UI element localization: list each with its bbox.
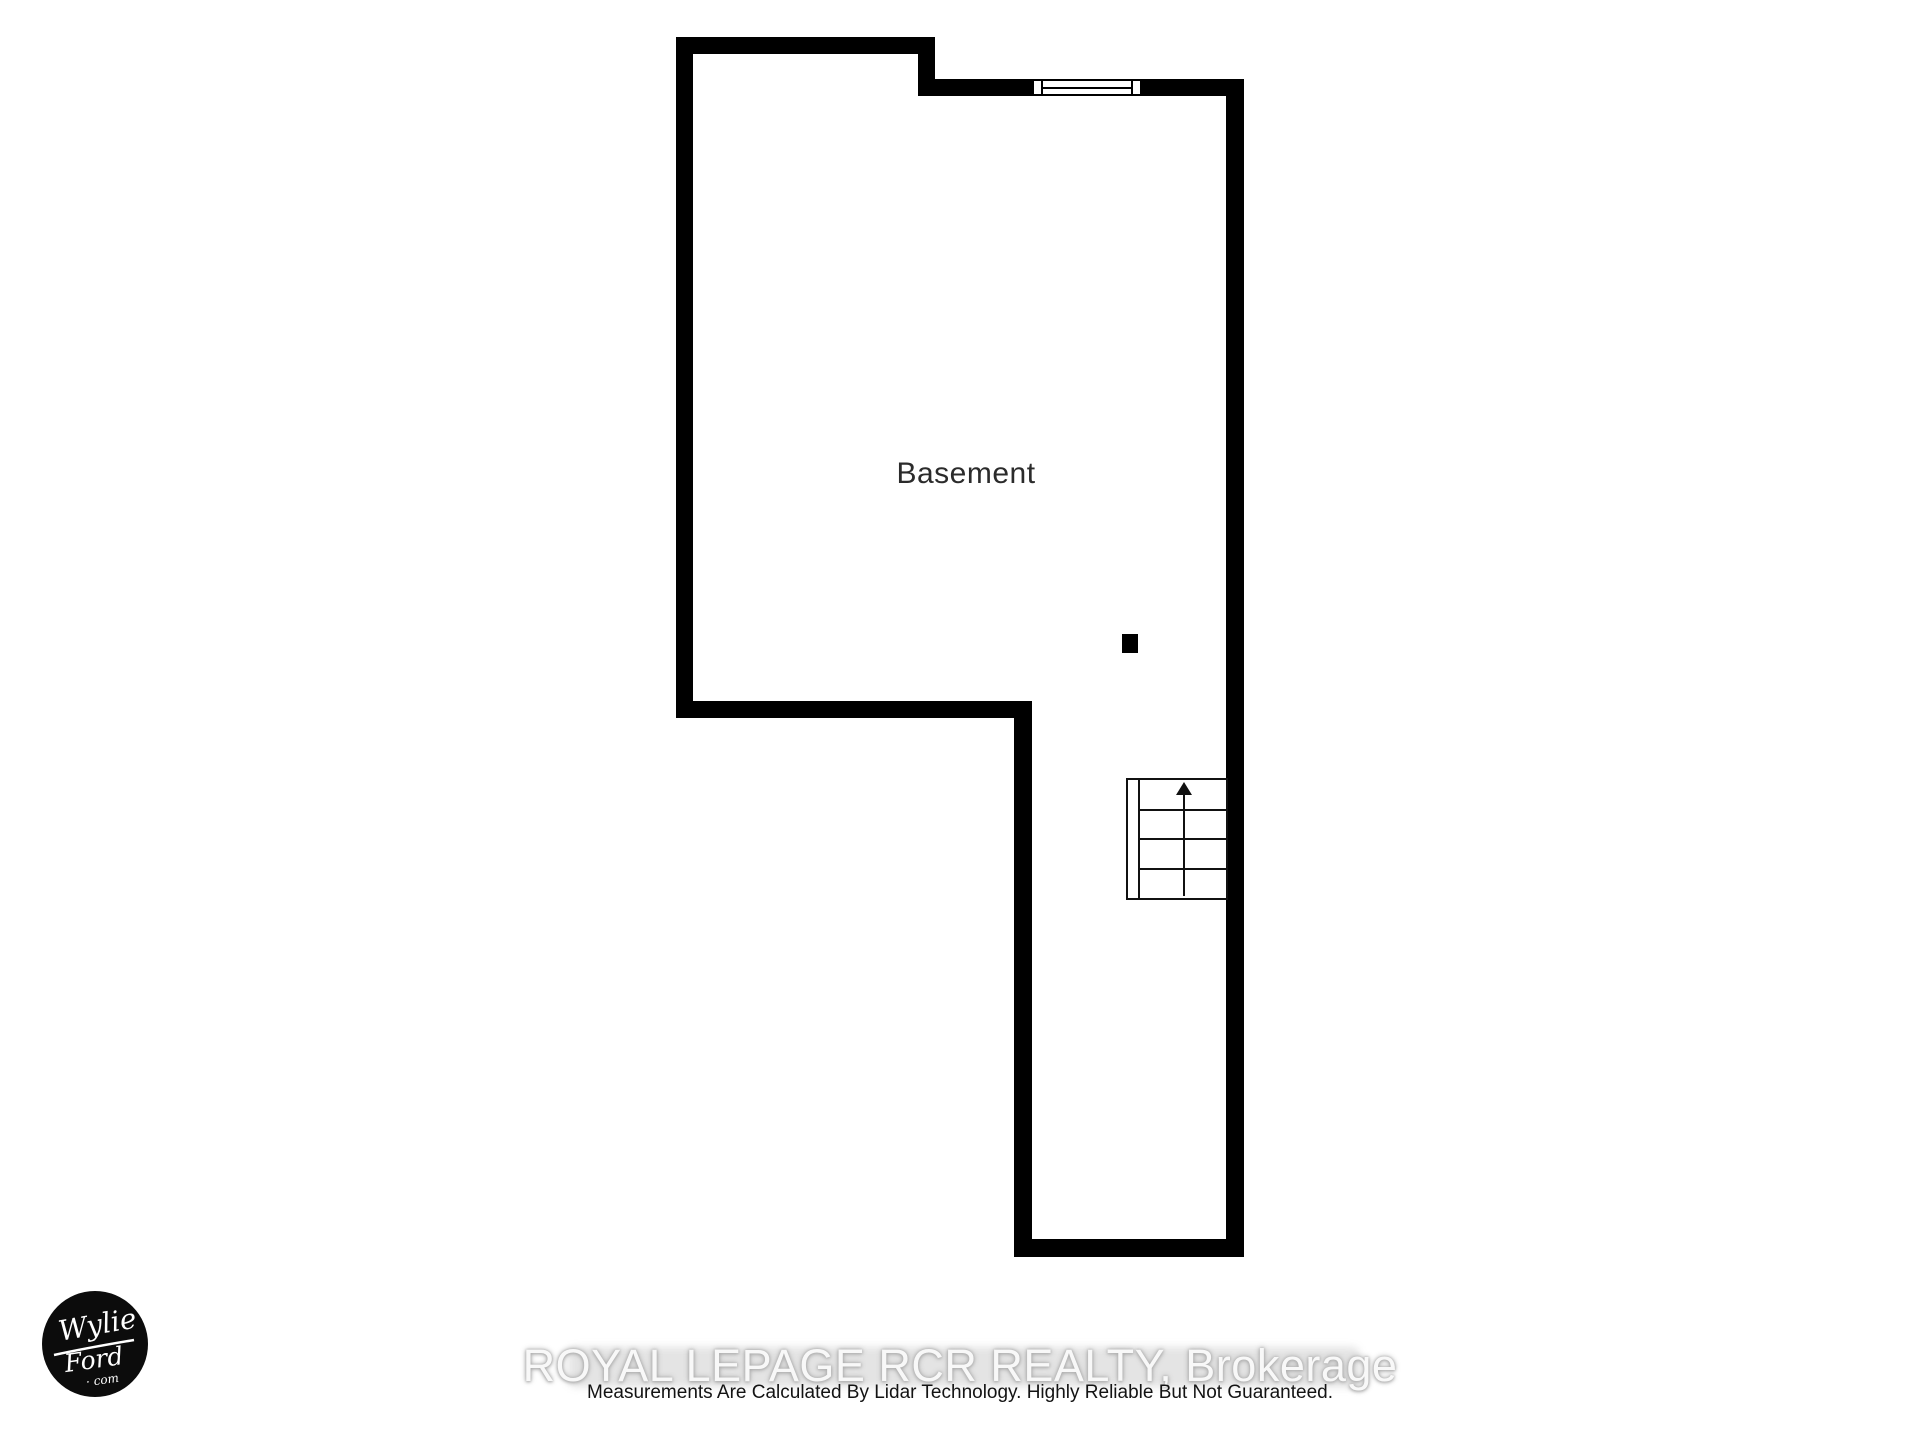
stairs-up-arrow-shaft	[1183, 793, 1185, 896]
wall-bottom	[1014, 1239, 1244, 1257]
window-mid-line	[1043, 87, 1131, 89]
wall-top-lower-left	[918, 79, 1032, 96]
window-right-cap	[1131, 81, 1133, 94]
wall-right	[1226, 79, 1244, 1257]
stair-tread-line	[1138, 838, 1226, 840]
wall-room-bottom	[676, 701, 1032, 718]
disclaimer-text: Measurements Are Calculated By Lidar Tec…	[357, 1381, 1563, 1404]
floorplan-canvas: Basement Wylie Ford · com ROYAL LEPAGE R…	[0, 0, 1920, 1440]
wall-left	[676, 37, 693, 718]
room-label: Basement	[866, 456, 1066, 492]
wall-top-upper	[676, 37, 935, 54]
support-post-marker	[1122, 634, 1138, 653]
window-icon	[1032, 79, 1142, 96]
wall-corridor-left	[1014, 701, 1032, 1257]
stair-tread-line	[1138, 809, 1226, 811]
brand-logo: Wylie Ford · com	[41, 1290, 149, 1398]
stair-tread-line	[1138, 868, 1226, 870]
staircase	[1126, 778, 1228, 900]
stairs-up-arrow-icon	[1176, 782, 1192, 795]
